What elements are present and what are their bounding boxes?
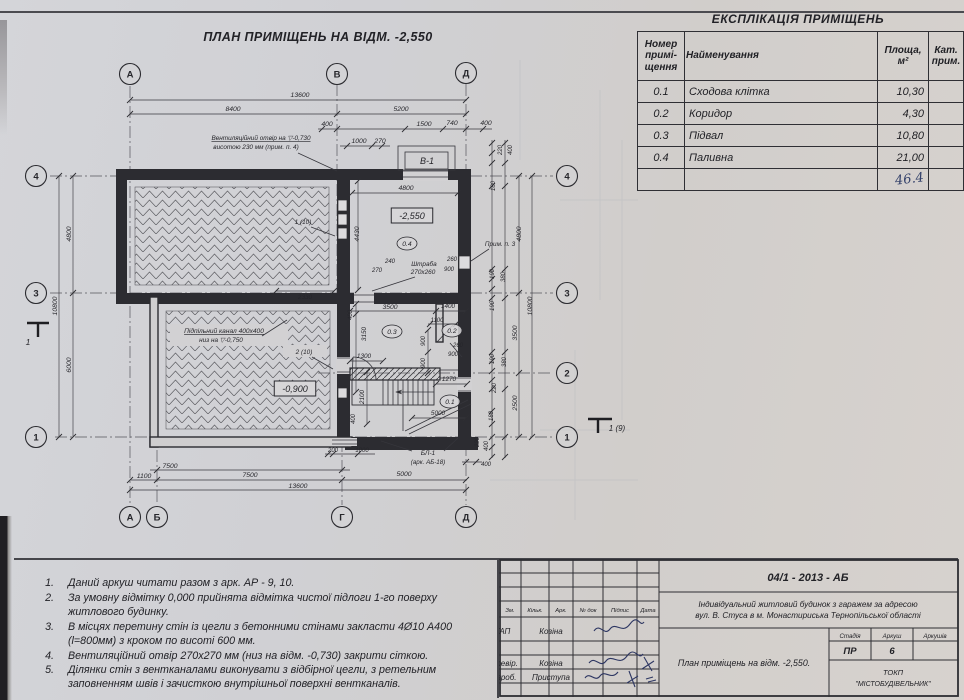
plan-dim-label: 1000: [351, 138, 366, 145]
room-area: 10,30: [878, 81, 929, 103]
note-item: 4.Вентиляційний отвір 270x270 мм (низ на…: [36, 650, 492, 664]
plan-dim-label: 5000: [431, 410, 446, 417]
axis-label: Б: [154, 512, 161, 523]
axis-label: 1: [33, 432, 39, 443]
explication-header-row: Номер примі- щення Найменування Площа, м…: [638, 32, 964, 81]
room-category: [929, 147, 964, 169]
plan-dim-label: БЛ-1: [421, 450, 436, 457]
title-block: Зм. Кільк. Арк. № док Підпис Дата ГАП Ко…: [499, 559, 959, 697]
axis-label: 4: [564, 171, 570, 182]
plan-dim-label: 270x260: [410, 269, 436, 276]
plan-dim-label: 180: [491, 180, 497, 191]
plan-dim-label: 0.3: [387, 329, 397, 336]
organization-line1: ТОКП: [883, 668, 904, 677]
plan-dim-label: 400: [481, 462, 492, 468]
plan-dim-label: 6000: [66, 357, 73, 372]
note-text: Ділянки стін з вентканалами виконувати з…: [68, 664, 492, 692]
plan-dim-label: 260: [446, 257, 458, 263]
plan-dim-label: Штраба: [411, 260, 437, 268]
note-number: 2.: [36, 592, 54, 620]
room-number: 0.3: [638, 125, 685, 147]
plan-dim-label: 260: [452, 343, 464, 349]
axis-label: Д: [463, 512, 470, 523]
note-item: 1.Даний аркуш читати разом з арк. АР - 9…: [36, 577, 492, 591]
plan-dim-label: 400: [484, 440, 490, 451]
document-code: 04/1 - 2013 - АБ: [767, 572, 848, 584]
note-item: 5.Ділянки стін з вентканалами виконувати…: [36, 664, 492, 692]
table-row-total: 46.4: [638, 169, 964, 191]
stage-value: ПР: [843, 646, 857, 657]
plan-dim-label: 400: [351, 413, 357, 424]
header-room-name: Найменування: [685, 32, 878, 81]
plan-dim-label: -2,550: [399, 211, 425, 221]
plan-dim-label: -0,900: [282, 384, 308, 394]
stamp-column-headers: Зм. Кільк. Арк. № док Підпис Дата: [505, 608, 656, 614]
axis-label: Д: [463, 68, 470, 79]
note-item: 2.За умовну відмітку 0,000 прийнята відм…: [36, 592, 492, 620]
plan-dim-label: 10800: [52, 296, 59, 315]
plan-dim-label: 240: [384, 259, 396, 265]
col-label: Арк.: [554, 608, 566, 614]
plan-svg: 136008400520040015007404001000270Вентиля…: [0, 0, 640, 555]
sheet-title: План приміщень на відм. -2,550.: [678, 658, 810, 668]
plan-dim-label: 400: [508, 144, 514, 155]
plan-dim-label: 5000: [396, 471, 411, 478]
plan-dim-label: 1: [26, 337, 31, 347]
total-area-cell: 46.4: [878, 169, 929, 191]
plan-dim-label: низ на ▽-0,750: [199, 337, 243, 344]
plan-dim-label: 1400: [441, 303, 456, 310]
notes-list: 1.Даний аркуш читати разом з арк. АР - 9…: [36, 577, 492, 693]
header-room-number: Номер примі- щення: [638, 32, 685, 81]
room-name: Паливна: [685, 147, 878, 169]
sheets-label: Аркушів: [922, 633, 947, 640]
room-name: Коридор: [685, 103, 878, 125]
role-label: ГАП: [499, 627, 511, 636]
room-number: 0.1: [638, 81, 685, 103]
axis-label: 1: [564, 432, 570, 443]
plan-dim-label: 8400: [225, 106, 240, 113]
col-label: Дата: [639, 608, 656, 614]
plan-dim-label: 190: [490, 353, 496, 364]
axis-label: 3: [564, 288, 569, 299]
role-label: Розроб.: [499, 673, 516, 682]
plan-dim-label: 0.4: [402, 241, 412, 248]
plan-dim-label: 400: [348, 309, 354, 320]
room-number: 0.2: [638, 103, 685, 125]
plan-dim-label: 380: [501, 271, 507, 282]
plan-dim-label: Прим. п. 3: [485, 241, 516, 248]
axis-label: 2: [564, 368, 569, 379]
project-description-line1: Індивідуальний житловий будинок з гараже…: [698, 600, 917, 609]
plan-dim-label: 10800: [527, 296, 534, 315]
axis-label: В: [334, 69, 341, 80]
note-number: 1.: [36, 577, 54, 591]
organization-line2: "МІСТОБУДІВЕЛЬНИК": [855, 681, 931, 688]
room-category: [929, 81, 964, 103]
plan-dim-label: 270: [371, 268, 383, 274]
axis-label: Г: [339, 512, 345, 523]
col-label: № док: [579, 608, 596, 614]
plan-dim-label: 4800: [398, 185, 413, 192]
note-text: За умовну відмітку 0,000 прийнята відміт…: [68, 592, 492, 620]
plan-dim-label: 1100: [431, 318, 445, 324]
axis-label: А: [127, 512, 134, 523]
plan-dim-label: 180: [489, 410, 495, 421]
plan-dim-label: 13600: [291, 92, 310, 99]
plan-dim-label: 2 (10): [295, 349, 313, 356]
table-row: 0.2 Коридор 4,30: [638, 103, 964, 125]
room-area: 10,80: [878, 125, 929, 147]
plan-dim-label: 7500: [162, 463, 177, 470]
plan-dim-label: 2330: [297, 294, 313, 301]
header-area: Площа, м²: [878, 32, 929, 81]
plan-dim-label: 1100: [137, 473, 152, 480]
plan-dim-label: 3500: [382, 304, 397, 311]
plan-dim-label: 400: [480, 120, 492, 127]
sheet-label: Аркуш: [882, 633, 903, 640]
plan-dim-label: 0.1: [445, 399, 455, 406]
signatures: [585, 620, 656, 687]
col-label: Підпис: [611, 608, 629, 614]
explication-title: ЕКСПЛІКАЦІЯ ПРИМІЩЕНЬ: [637, 12, 959, 26]
plan-dim-label: 1 (10): [295, 219, 312, 226]
plan-dim-label: 900: [448, 352, 459, 358]
sheet-number: 6: [889, 646, 895, 657]
note-number: 5.: [36, 664, 54, 692]
empty-cell: [638, 169, 685, 191]
plan-dim-label: 4800: [66, 226, 73, 241]
explication-table: ЕКСПЛІКАЦІЯ ПРИМІЩЕНЬ Номер примі- щення…: [637, 12, 959, 191]
plan-dim-label: 4800: [516, 226, 523, 241]
room-name: Сходова клітка: [685, 81, 878, 103]
plan-dim-label: 2100: [359, 389, 366, 405]
table-row: 0.4 Паливна 21,00: [638, 147, 964, 169]
plan-dim-label: Вентиляційний отвір на ▽-0,730: [211, 134, 311, 142]
plan-dim-label: 1300: [357, 353, 372, 360]
plan-dim-label: 1 (9): [609, 424, 626, 433]
plan-dim-label: (арк. АБ-18): [411, 459, 445, 466]
col-label: Зм.: [505, 608, 514, 614]
plan-dim-label: 1000: [355, 448, 369, 454]
room-name: Підвал: [685, 125, 878, 147]
plan-dim-label: 740: [446, 120, 458, 127]
stage-label: Стадія: [839, 633, 861, 640]
plan-dim-label: 220: [492, 382, 498, 394]
plan-dim-label: 400: [321, 121, 333, 128]
plan-dim-label: 13600: [289, 483, 308, 490]
table-row: 0.1 Сходова клітка 10,30: [638, 81, 964, 103]
room-number: 0.4: [638, 147, 685, 169]
room-area: 4,30: [878, 103, 929, 125]
axis-label: 3: [33, 288, 38, 299]
role-name: Козіна: [539, 627, 563, 636]
role-label: Перевір.: [499, 659, 518, 668]
note-text: В місцях перетину стін із цегли з бетонн…: [68, 621, 492, 649]
plan-dim-label: 190: [490, 268, 496, 279]
room-area: 21,00: [878, 147, 929, 169]
scanned-drawing-sheet: { "title": "ПЛАН ПРИМІЩЕНЬ НА ВІДМ. -2,5…: [0, 0, 964, 700]
plan-dim-label: 220: [498, 144, 504, 156]
plan-dim-label: 900: [444, 267, 455, 273]
note-text: Даний аркуш читати разом з арк. АР - 9, …: [68, 577, 492, 591]
note-number: 3.: [36, 621, 54, 649]
plan-dim-label: В-1: [420, 156, 434, 166]
role-name: Козіна: [539, 659, 563, 668]
plan-dim-label: 380: [502, 356, 508, 367]
room-category: [929, 103, 964, 125]
note-number: 4.: [36, 650, 54, 664]
plan-dim-label: 220: [475, 436, 481, 448]
plan-dim-label: 190: [490, 300, 496, 311]
plan-dim-label: 1270: [442, 376, 457, 383]
axis-label: 4: [33, 171, 39, 182]
room-category: [929, 125, 964, 147]
plan-dim-label: 900: [421, 335, 427, 346]
empty-cell: [929, 169, 964, 191]
plan-dim-label: 3500: [512, 325, 519, 340]
plan-dim-label: 200: [327, 448, 339, 454]
plan-dim-label: 5200: [393, 106, 408, 113]
axis-label: А: [127, 69, 134, 80]
note-text: Вентиляційний отвір 270x270 мм (низ на в…: [68, 650, 492, 664]
plan-dim-label: 270: [373, 138, 386, 145]
empty-cell: [685, 169, 878, 191]
header-category: Кат. прим.: [929, 32, 964, 81]
handwritten-total: 46.4: [894, 170, 925, 188]
plan-dim-label: 900: [421, 357, 427, 368]
plan-dim-label: 2500: [512, 395, 519, 411]
plan-dim-label: Підпільний канал 400x400: [184, 327, 264, 335]
plan-dim-label: 0.2: [447, 328, 457, 335]
note-item: 3.В місцях перетину стін із цегли з бето…: [36, 621, 492, 649]
project-description-line2: вул. В. Стуса в м. Монастириська Тернопі…: [695, 611, 921, 620]
col-label: Кільк.: [527, 608, 542, 614]
plan-dim-label: 7500: [242, 472, 257, 479]
plan-dim-label: 4430: [354, 226, 361, 241]
role-name: Приступа: [532, 673, 571, 682]
plan-dim-label: 3150: [361, 326, 368, 341]
plan-dim-label: висотою 230 мм (прим. п. 4): [213, 144, 298, 151]
plan-dim-label: 1500: [416, 121, 431, 128]
table-row: 0.3 Підвал 10,80: [638, 125, 964, 147]
